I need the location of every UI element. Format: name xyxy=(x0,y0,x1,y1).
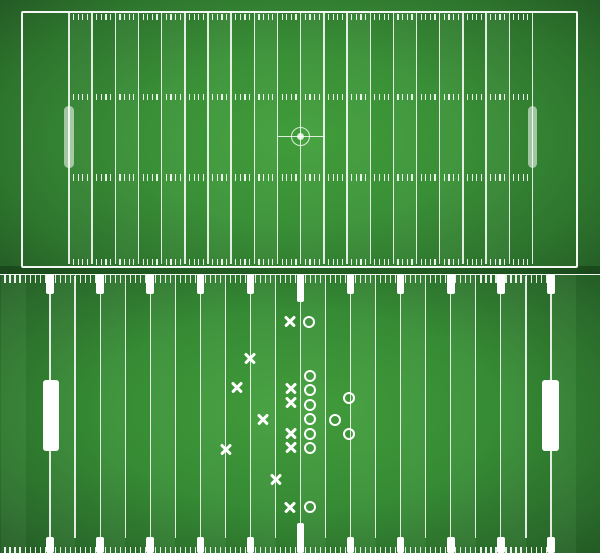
yard-tick xyxy=(505,547,506,553)
football-fields-illustration xyxy=(0,0,600,553)
yard-tick xyxy=(195,547,196,553)
yard-line xyxy=(100,276,101,539)
yard-tick xyxy=(410,275,411,283)
yard-tick xyxy=(325,547,326,553)
yard-tick xyxy=(320,275,321,283)
yard-tick xyxy=(40,547,41,553)
yard-tick xyxy=(130,275,131,283)
yard-line xyxy=(74,276,75,539)
five-yard-tab xyxy=(197,274,205,294)
x-mark xyxy=(271,474,282,485)
five-yard-tab xyxy=(96,537,104,553)
yard-tick xyxy=(275,547,276,553)
yard-tick xyxy=(415,275,416,283)
yard-tick xyxy=(520,275,521,283)
x-mark xyxy=(286,428,297,439)
yard-tick xyxy=(340,275,341,283)
yard-tick xyxy=(415,547,416,553)
five-yard-tab xyxy=(46,537,54,553)
yard-tick xyxy=(4,275,5,283)
top-field-border xyxy=(21,11,578,268)
yard-tick xyxy=(205,547,206,553)
yard-tick xyxy=(60,275,61,283)
yard-tick xyxy=(330,547,331,553)
five-yard-tab xyxy=(547,274,555,294)
yard-tick xyxy=(365,547,366,553)
yard-tick xyxy=(435,547,436,553)
yard-tick xyxy=(425,275,426,283)
yard-tick xyxy=(355,275,356,283)
x-mark xyxy=(286,383,297,394)
five-yard-tab xyxy=(197,537,205,553)
o-mark xyxy=(343,428,355,440)
o-mark xyxy=(303,316,315,328)
yard-tick xyxy=(245,547,246,553)
yard-tick xyxy=(30,547,31,553)
yard-tick xyxy=(220,275,221,283)
yard-line xyxy=(525,276,526,539)
o-mark xyxy=(304,370,316,382)
yard-tick xyxy=(165,275,166,283)
yard-tick xyxy=(455,275,456,283)
yard-tick xyxy=(536,275,537,283)
yard-tick xyxy=(260,275,261,283)
yard-tick xyxy=(75,275,76,283)
yard-tick xyxy=(140,275,141,283)
yard-tick xyxy=(14,275,15,283)
yard-tick xyxy=(541,275,542,283)
yard-tick xyxy=(35,275,36,283)
yard-tick xyxy=(515,547,516,553)
yard-line xyxy=(300,276,301,539)
o-mark xyxy=(304,384,316,396)
yard-tick xyxy=(125,275,126,283)
yard-tick xyxy=(320,547,321,553)
yard-tick xyxy=(170,275,171,283)
x-mark xyxy=(285,502,296,513)
yard-tick xyxy=(120,547,121,553)
yard-tick xyxy=(165,547,166,553)
yard-tick xyxy=(130,547,131,553)
yard-tick xyxy=(536,547,537,553)
yard-tick xyxy=(110,547,111,553)
x-mark xyxy=(258,414,269,425)
yard-tick xyxy=(60,547,61,553)
yard-line xyxy=(125,276,126,539)
five-yard-tab xyxy=(297,274,305,302)
yard-tick xyxy=(275,275,276,283)
yard-tick xyxy=(470,275,471,283)
yard-line xyxy=(175,276,176,539)
yard-tick xyxy=(480,547,481,553)
yard-tick xyxy=(370,275,371,283)
yard-tick xyxy=(460,547,461,553)
yard-tick xyxy=(380,275,381,283)
yard-tick xyxy=(190,275,191,283)
yard-tick xyxy=(365,275,366,283)
x-mark xyxy=(286,397,297,408)
yard-tick xyxy=(455,547,456,553)
o-mark xyxy=(304,399,316,411)
yard-tick xyxy=(4,547,5,553)
yard-tick xyxy=(475,547,476,553)
yard-tick xyxy=(295,275,296,283)
yard-tick xyxy=(260,547,261,553)
yard-tick xyxy=(526,275,527,283)
yard-tick xyxy=(70,547,71,553)
yard-tick xyxy=(325,275,326,283)
o-mark xyxy=(304,428,316,440)
x-mark xyxy=(245,353,256,364)
yard-tick xyxy=(330,275,331,283)
yard-tick xyxy=(80,275,81,283)
five-yard-tab xyxy=(297,523,305,553)
yard-tick xyxy=(420,275,421,283)
yard-tick xyxy=(490,275,491,283)
five-yard-tab xyxy=(247,537,255,553)
yard-tick xyxy=(85,547,86,553)
yard-tick xyxy=(485,547,486,553)
yard-tick xyxy=(505,275,506,283)
yard-line xyxy=(400,276,401,539)
yard-tick xyxy=(390,275,391,283)
yard-tick xyxy=(170,547,171,553)
yard-tick xyxy=(180,275,181,283)
yard-line xyxy=(500,276,501,539)
o-mark xyxy=(304,501,316,513)
five-yard-tab xyxy=(547,537,555,553)
five-yard-tab xyxy=(146,537,154,553)
yard-tick xyxy=(541,547,542,553)
yard-tick xyxy=(155,547,156,553)
yard-tick xyxy=(55,547,56,553)
yard-line xyxy=(350,276,351,539)
yard-tick xyxy=(485,275,486,283)
yard-tick xyxy=(405,547,406,553)
yard-tick xyxy=(285,547,286,553)
yard-tick xyxy=(370,547,371,553)
yard-tick xyxy=(315,275,316,283)
yard-tick xyxy=(125,547,126,553)
x-mark xyxy=(220,444,231,455)
five-yard-tab xyxy=(447,537,455,553)
yard-tick xyxy=(90,547,91,553)
yard-tick xyxy=(35,547,36,553)
yard-tick xyxy=(80,547,81,553)
yard-tick xyxy=(475,275,476,283)
yard-line xyxy=(200,276,201,539)
yard-tick xyxy=(135,275,136,283)
yard-tick xyxy=(210,547,211,553)
five-yard-tab xyxy=(146,274,154,294)
yard-tick xyxy=(465,275,466,283)
x-mark xyxy=(286,442,297,453)
yard-tick xyxy=(190,547,191,553)
yard-tick xyxy=(510,547,511,553)
yard-tick xyxy=(225,547,226,553)
yard-tick xyxy=(115,547,116,553)
yard-line xyxy=(325,276,326,539)
yard-tick xyxy=(430,547,431,553)
yard-tick xyxy=(460,275,461,283)
yard-tick xyxy=(90,275,91,283)
five-yard-tab xyxy=(397,537,405,553)
yard-tick xyxy=(230,275,231,283)
yard-tick xyxy=(360,275,361,283)
yard-tick xyxy=(531,547,532,553)
o-mark xyxy=(304,442,316,454)
yard-tick xyxy=(240,547,241,553)
yard-tick xyxy=(255,275,256,283)
yard-tick xyxy=(19,547,20,553)
yard-tick xyxy=(290,547,291,553)
five-yard-tab xyxy=(96,274,104,294)
yard-tick xyxy=(14,547,15,553)
yard-tick xyxy=(240,275,241,283)
five-yard-tab xyxy=(46,274,54,294)
yard-tick xyxy=(160,275,161,283)
yard-tick xyxy=(25,275,26,283)
yard-tick xyxy=(526,547,527,553)
yard-tick xyxy=(520,547,521,553)
five-yard-tab xyxy=(347,537,355,553)
yard-tick xyxy=(70,275,71,283)
yard-tick xyxy=(305,275,306,283)
yard-tick xyxy=(185,275,186,283)
yard-tick xyxy=(420,547,421,553)
yard-tick xyxy=(465,547,466,553)
yard-tick xyxy=(245,275,246,283)
yard-tick xyxy=(355,547,356,553)
yard-tick xyxy=(280,275,281,283)
yard-tick xyxy=(105,275,106,283)
yard-tick xyxy=(335,547,336,553)
five-yard-tab xyxy=(497,274,505,294)
yard-tick xyxy=(115,275,116,283)
yard-tick xyxy=(440,275,441,283)
yard-tick xyxy=(220,547,221,553)
yard-tick xyxy=(140,547,141,553)
yard-tick xyxy=(55,275,56,283)
yard-tick xyxy=(120,275,121,283)
x-mark xyxy=(285,316,296,327)
yard-tick xyxy=(270,275,271,283)
yard-tick xyxy=(75,547,76,553)
five-yard-tab xyxy=(447,274,455,294)
goal-bar xyxy=(43,380,60,451)
yard-tick xyxy=(390,547,391,553)
yard-tick xyxy=(515,275,516,283)
yard-line xyxy=(250,276,251,539)
yard-tick xyxy=(265,275,266,283)
yard-tick xyxy=(375,547,376,553)
o-mark xyxy=(329,414,341,426)
yard-tick xyxy=(295,547,296,553)
yard-tick xyxy=(440,547,441,553)
yard-tick xyxy=(435,275,436,283)
yard-tick xyxy=(9,275,10,283)
yard-tick xyxy=(280,547,281,553)
o-mark xyxy=(343,392,355,404)
yard-tick xyxy=(105,547,106,553)
yard-tick xyxy=(160,547,161,553)
yard-tick xyxy=(65,275,66,283)
yard-tick xyxy=(155,275,156,283)
yard-tick xyxy=(430,275,431,283)
yard-tick xyxy=(425,547,426,553)
yard-tick xyxy=(315,547,316,553)
yard-line xyxy=(225,276,226,539)
yard-tick xyxy=(85,275,86,283)
yard-line xyxy=(375,276,376,539)
yard-tick xyxy=(480,275,481,283)
yard-tick xyxy=(335,275,336,283)
yard-tick xyxy=(385,275,386,283)
yard-tick xyxy=(380,547,381,553)
yard-tick xyxy=(180,547,181,553)
yard-line xyxy=(450,276,451,539)
yard-tick xyxy=(230,547,231,553)
yard-tick xyxy=(255,547,256,553)
yard-tick xyxy=(305,547,306,553)
yard-tick xyxy=(360,547,361,553)
yard-tick xyxy=(110,275,111,283)
goal-bar xyxy=(542,380,559,451)
yard-tick xyxy=(235,275,236,283)
yard-tick xyxy=(25,547,26,553)
yard-tick xyxy=(285,275,286,283)
yard-tick xyxy=(490,547,491,553)
yard-line xyxy=(475,276,476,539)
yard-tick xyxy=(215,547,216,553)
yard-tick xyxy=(290,275,291,283)
x-mark xyxy=(231,382,242,393)
yard-tick xyxy=(531,275,532,283)
yard-tick xyxy=(310,275,311,283)
yard-tick xyxy=(510,275,511,283)
yard-tick xyxy=(385,547,386,553)
yard-tick xyxy=(185,547,186,553)
yard-tick xyxy=(270,547,271,553)
yard-tick xyxy=(470,547,471,553)
yard-tick xyxy=(175,275,176,283)
five-yard-tab xyxy=(247,274,255,294)
o-mark xyxy=(304,413,316,425)
yard-tick xyxy=(410,547,411,553)
yard-tick xyxy=(195,275,196,283)
yard-line xyxy=(150,276,151,539)
yard-tick xyxy=(19,275,20,283)
five-yard-tab xyxy=(347,274,355,294)
yard-tick xyxy=(65,547,66,553)
yard-tick xyxy=(210,275,211,283)
yard-tick xyxy=(205,275,206,283)
yard-tick xyxy=(30,275,31,283)
yard-tick xyxy=(135,547,136,553)
yard-tick xyxy=(40,275,41,283)
yard-tick xyxy=(175,547,176,553)
yard-tick xyxy=(340,547,341,553)
yard-tick xyxy=(215,275,216,283)
yard-tick xyxy=(310,547,311,553)
yard-tick xyxy=(225,275,226,283)
yard-line xyxy=(425,276,426,539)
yard-tick xyxy=(405,275,406,283)
yard-line xyxy=(275,276,276,539)
yard-tick xyxy=(9,547,10,553)
yard-tick xyxy=(235,547,236,553)
five-yard-tab xyxy=(497,537,505,553)
yard-tick xyxy=(375,275,376,283)
yard-tick xyxy=(265,547,266,553)
five-yard-tab xyxy=(397,274,405,294)
